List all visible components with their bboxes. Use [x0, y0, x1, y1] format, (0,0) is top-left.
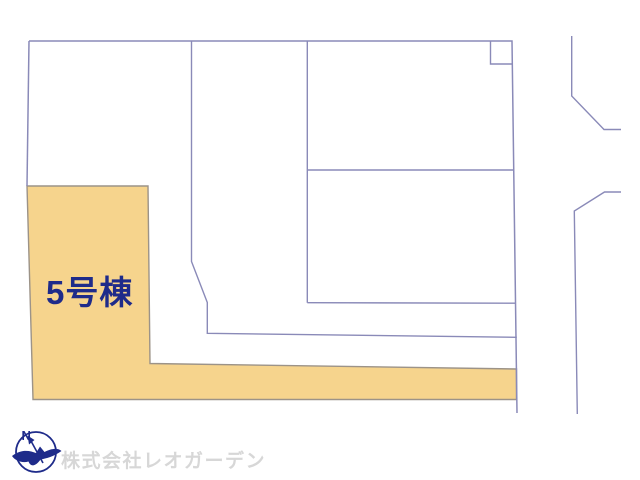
outer-left-edge-path: [27, 41, 29, 186]
cross-line-south-path: [307, 303, 516, 304]
site-plan-svg: N: [0, 0, 640, 480]
road-edge-northeast-path: [572, 36, 621, 130]
road-edge-southeast-path: [574, 192, 621, 414]
lot-5-label: 5号棟: [46, 276, 133, 309]
divider-west-path: [192, 41, 517, 337]
compass: N: [12, 428, 62, 472]
company-watermark: 株式会社レオガーデン: [61, 452, 266, 471]
compass-north-label: N: [22, 428, 31, 443]
corner-notch-path: [491, 41, 513, 64]
